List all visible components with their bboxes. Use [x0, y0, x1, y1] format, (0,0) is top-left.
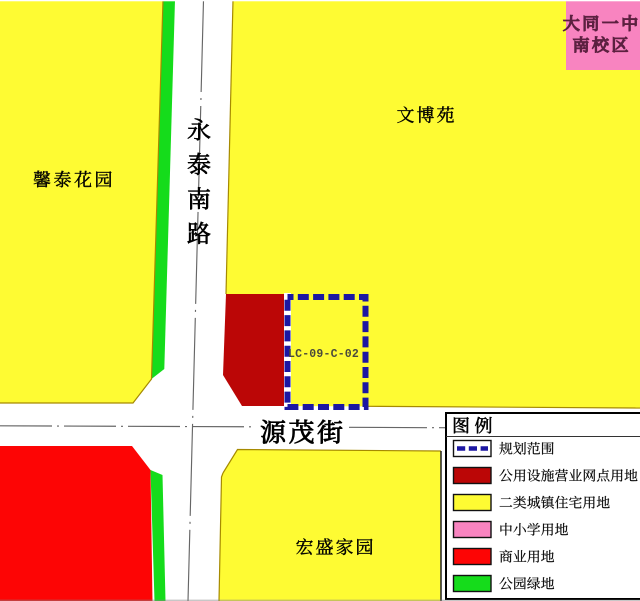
svg-text:LC-09-C-02: LC-09-C-02 — [288, 348, 359, 361]
